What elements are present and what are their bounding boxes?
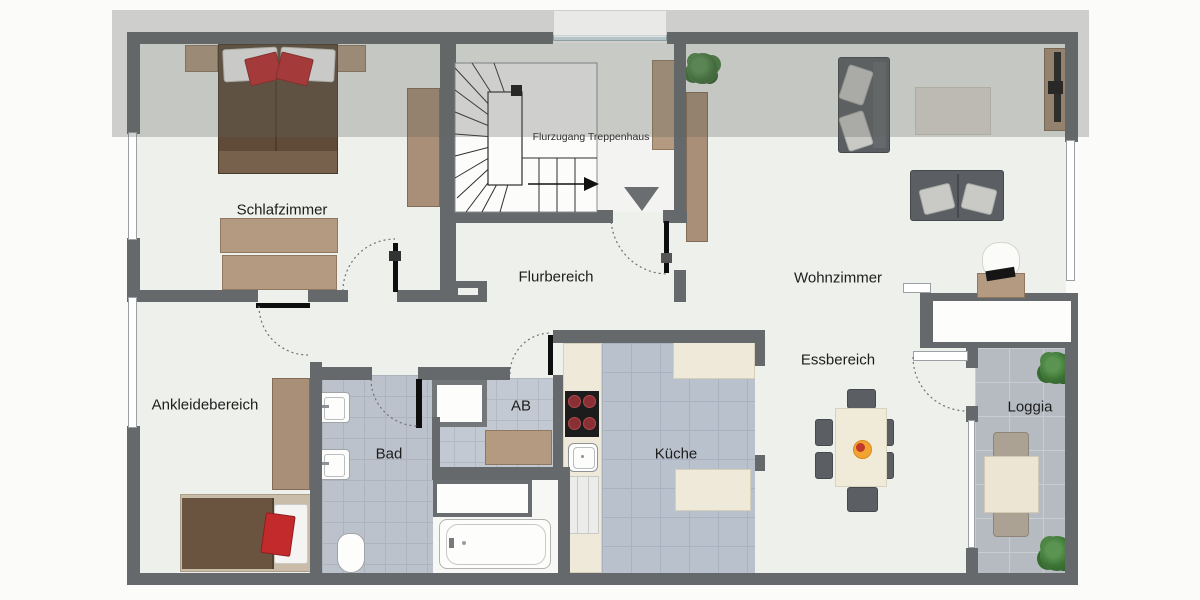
room-label-flurbereich: Flurbereich xyxy=(518,269,593,286)
room-label-loggia: Loggia xyxy=(1007,399,1052,416)
room-label-schlafzimmer: Schlafzimmer xyxy=(237,202,328,219)
door-leaf xyxy=(416,379,422,428)
door-swing-icon xyxy=(510,333,551,374)
door-swing-icon xyxy=(913,357,967,411)
desk xyxy=(977,273,1025,298)
room-label-ankleidebereich: Ankleidebereich xyxy=(152,397,259,414)
room-label-essbereich: Essbereich xyxy=(801,352,875,369)
door-swing-icon xyxy=(343,239,395,291)
door-swing-icon xyxy=(611,217,668,274)
door-swing-icon xyxy=(371,379,418,426)
room-label-kueche: Küche xyxy=(655,446,698,463)
room-label-ab: AB xyxy=(511,398,531,415)
door-leaf xyxy=(548,335,553,375)
room-label-wohnzimmer: Wohnzimmer xyxy=(794,270,882,287)
stairwell-light-patch xyxy=(554,11,666,37)
door-leaf xyxy=(664,221,669,273)
door-swing-icon xyxy=(259,306,308,355)
door-leaf xyxy=(393,243,398,292)
room-label-bad: Bad xyxy=(376,446,403,463)
door-handle xyxy=(661,253,672,263)
entrance-arrow-icon xyxy=(624,187,659,211)
door-handle xyxy=(389,251,401,261)
door-leaf xyxy=(256,303,310,308)
floor-plan-canvas: Schlafzimmer Flurbereich Wohnzimmer Ankl… xyxy=(0,0,1200,600)
